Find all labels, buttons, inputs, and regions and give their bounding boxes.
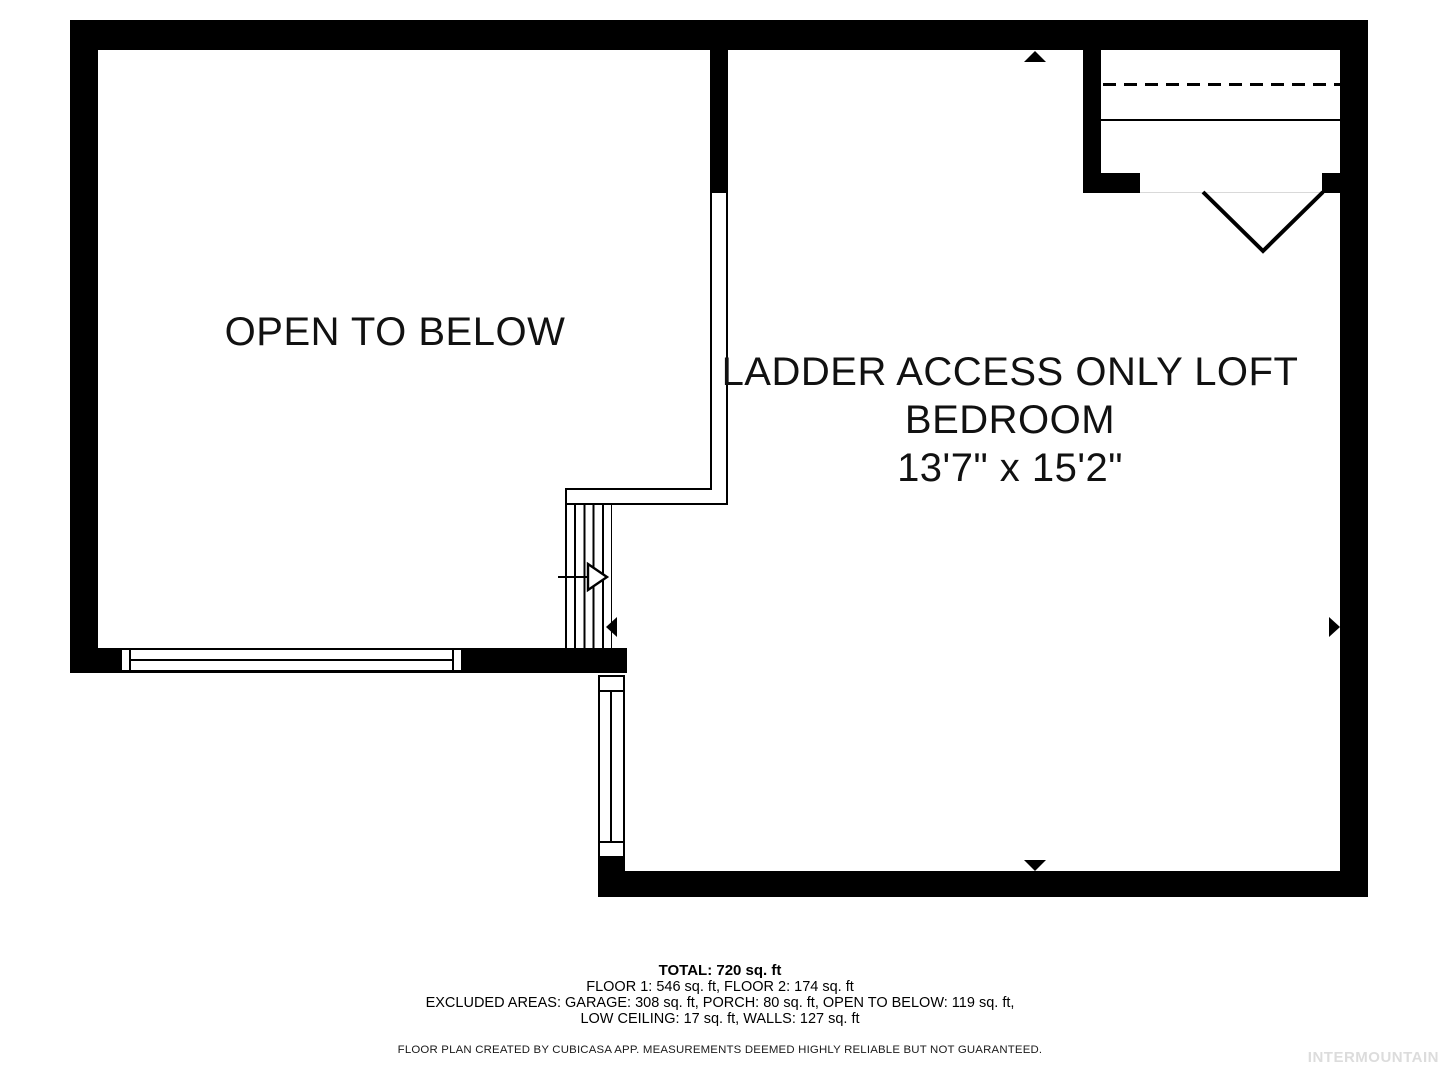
section-marker-right-icon (1329, 617, 1340, 637)
stair-direction-arrowhead-icon (587, 563, 609, 591)
section-marker-up-icon (1024, 51, 1046, 62)
wall-closet-stub-right (1322, 173, 1340, 193)
watermark: INTERMOUNTAIN (1308, 1049, 1439, 1066)
summary-floors: FLOOR 1: 546 sq. ft, FLOOR 2: 174 sq. ft (0, 979, 1440, 995)
railing-end-cap (565, 488, 567, 505)
closet-rod-dashed-line (1103, 83, 1340, 86)
label-loft-dimensions: 13'7" x 15'2" (710, 444, 1310, 492)
label-loft: LADDER ACCESS ONLY LOFT BEDROOM 13'7" x … (710, 348, 1310, 492)
label-open-to-below: OPEN TO BELOW (95, 308, 695, 356)
wall-right (1340, 20, 1368, 897)
window-horizontal (120, 648, 463, 672)
window-cap-bottom (600, 841, 623, 843)
railing-inner-horizontal (565, 488, 712, 490)
stair-direction-line (558, 576, 590, 578)
section-marker-left-icon (606, 617, 617, 637)
area-summary: TOTAL: 720 sq. ft FLOOR 1: 546 sq. ft, F… (0, 963, 1440, 1027)
window-mid-line (131, 659, 452, 661)
wall-closet-stub-left (1083, 173, 1140, 193)
window-vertical (598, 675, 625, 858)
closet-bifold-door-icon (1200, 191, 1326, 255)
window-cap-right (452, 650, 454, 670)
wall-divider-loft (710, 50, 728, 193)
summary-disclaimer: FLOOR PLAN CREATED BY CUBICASA APP. MEAS… (0, 1044, 1440, 1056)
summary-excluded-line1: EXCLUDED AREAS: GARAGE: 308 sq. ft, PORC… (0, 995, 1440, 1011)
closet-shelf-line (1101, 119, 1340, 121)
label-loft-line2: BEDROOM (710, 396, 1310, 444)
wall-bottom (598, 871, 1368, 897)
label-loft-line1: LADDER ACCESS ONLY LOFT (710, 348, 1310, 396)
wall-window-corner (598, 856, 625, 897)
wall-left (70, 20, 98, 673)
floor-plan: OPEN TO BELOW LADDER ACCESS ONLY LOFT BE… (0, 0, 1440, 1080)
summary-excluded-line2: LOW CEILING: 17 sq. ft, WALLS: 127 sq. f… (0, 1011, 1440, 1027)
wall-top (70, 20, 1368, 50)
window-mid-line (610, 692, 612, 841)
section-marker-down-icon (1024, 860, 1046, 871)
summary-total: TOTAL: 720 sq. ft (0, 963, 1440, 979)
wall-closet-left (1083, 50, 1101, 193)
